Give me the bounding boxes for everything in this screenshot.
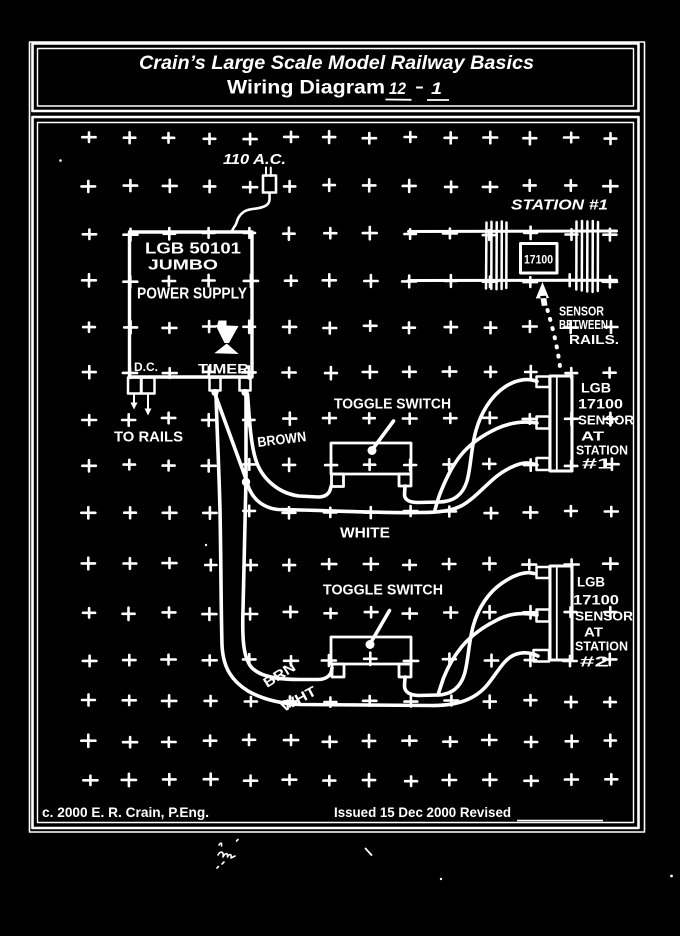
svg-text:LGB 50101: LGB 50101 — [145, 241, 241, 258]
svg-text:Issued 15 Dec 2000 Revised: Issued 15 Dec 2000 Revised — [334, 804, 511, 820]
svg-text:STATION: STATION — [576, 444, 628, 458]
svg-text:#1: #1 — [582, 457, 612, 473]
svg-text:BETWEEN: BETWEEN — [559, 318, 608, 332]
svg-text:AT: AT — [581, 429, 604, 444]
svg-text:STATION: STATION — [575, 640, 628, 654]
svg-text:D.C.: D.C. — [134, 360, 158, 374]
svg-text:1: 1 — [431, 79, 442, 98]
svg-text:TOGGLE SWITCH: TOGGLE SWITCH — [323, 583, 443, 599]
svg-text:SENSOR: SENSOR — [578, 413, 635, 428]
svg-text:WHT: WHT — [278, 682, 320, 714]
svg-text:c. 2000 E. R. Crain, P.Eng.: c. 2000 E. R. Crain, P.Eng. — [42, 804, 209, 820]
svg-text:RAILS.: RAILS. — [569, 333, 619, 347]
svg-text:AT: AT — [584, 625, 603, 640]
svg-text:Wiring Diagram: Wiring Diagram — [227, 78, 385, 99]
svg-text:17100: 17100 — [524, 253, 553, 267]
svg-text:12: 12 — [389, 79, 406, 98]
svg-text:BRN: BRN — [260, 658, 298, 690]
svg-text:TOGGLE SWITCH: TOGGLE SWITCH — [334, 397, 451, 413]
svg-text:BROWN: BROWN — [256, 428, 307, 450]
svg-text:17100: 17100 — [578, 397, 623, 412]
svg-text:LGB: LGB — [581, 381, 611, 396]
svg-text:SENSOR: SENSOR — [559, 305, 604, 319]
svg-text:JUMBO: JUMBO — [148, 257, 218, 274]
svg-text:STATION #1: STATION #1 — [511, 197, 608, 214]
svg-text:110 A.C.: 110 A.C. — [223, 152, 286, 168]
svg-text:LGB: LGB — [577, 575, 605, 590]
svg-text:17100: 17100 — [573, 593, 619, 608]
svg-text:SENSOR: SENSOR — [575, 609, 634, 624]
svg-text:WHITE: WHITE — [340, 525, 390, 542]
svg-text:TIMER: TIMER — [198, 362, 249, 377]
svg-text:POWER SUPPLY: POWER SUPPLY — [137, 286, 247, 303]
svg-text:#2: #2 — [580, 655, 609, 671]
svg-text:Crain’s Large Scale Model Rail: Crain’s Large Scale Model Railway Basics — [139, 53, 534, 74]
svg-text:-: - — [415, 77, 424, 96]
svg-text:TO RAILS: TO RAILS — [114, 429, 183, 446]
